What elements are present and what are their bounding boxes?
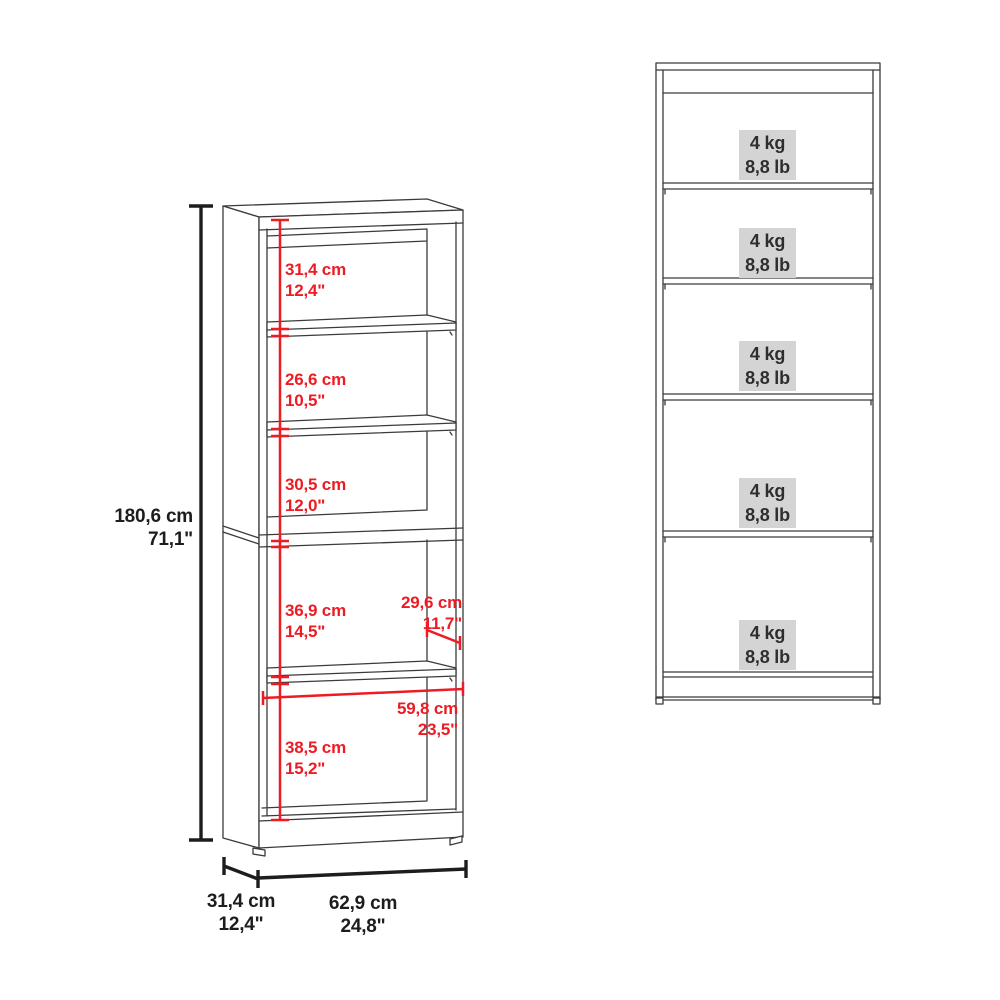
capacity-kg: 4 kg xyxy=(739,229,796,253)
overall-height-label: 180,6 cm 71,1" xyxy=(114,505,193,551)
dimension-cm: 31,4 cm xyxy=(285,259,346,280)
dimension-inch: 12,0" xyxy=(285,495,346,516)
capacity-lb: 8,8 lb xyxy=(739,645,796,669)
section-1-height-label: 31,4 cm 12,4" xyxy=(285,259,346,301)
dimension-cm: 30,5 cm xyxy=(285,474,346,495)
technical-line-art xyxy=(0,0,1000,1000)
dimension-inch: 12,4" xyxy=(207,913,275,936)
footprint-width-label: 62,9 cm 24,8" xyxy=(329,892,397,938)
depth-dimension-line xyxy=(224,857,258,888)
capacity-lb: 8,8 lb xyxy=(739,366,796,390)
capacity-kg: 4 kg xyxy=(739,131,796,155)
footprint-depth-label: 31,4 cm 12,4" xyxy=(207,890,275,936)
dimension-cm: 26,6 cm xyxy=(285,369,346,390)
capacity-kg: 4 kg xyxy=(739,479,796,503)
inner-depth-label: 29,6 cm 11,7" xyxy=(401,592,462,634)
capacity-lb: 8,8 lb xyxy=(739,155,796,179)
dimension-cm: 59,8 cm xyxy=(397,698,458,719)
section-3-height-label: 30,5 cm 12,0" xyxy=(285,474,346,516)
capacity-kg: 4 kg xyxy=(739,621,796,645)
dimension-inch: 23,5" xyxy=(397,719,458,740)
dimension-cm: 62,9 cm xyxy=(329,892,397,915)
shelf-capacity-badge: 4 kg 8,8 lb xyxy=(739,228,796,278)
dimension-cm: 31,4 cm xyxy=(207,890,275,913)
dimension-inch: 14,5" xyxy=(285,621,346,642)
capacity-kg: 4 kg xyxy=(739,342,796,366)
dimension-inch: 11,7" xyxy=(401,613,462,634)
inner-width-label: 59,8 cm 23,5" xyxy=(397,698,458,740)
section-2-height-label: 26,6 cm 10,5" xyxy=(285,369,346,411)
section-4-height-label: 36,9 cm 14,5" xyxy=(285,600,346,642)
dimension-cm: 38,5 cm xyxy=(285,737,346,758)
dimension-inch: 71,1" xyxy=(114,528,193,551)
width-dimension-line xyxy=(258,860,466,878)
shelf-capacity-badge: 4 kg 8,8 lb xyxy=(739,130,796,180)
bookcase-dimension-sheet: 31,4 cm 12,4" 26,6 cm 10,5" 30,5 cm 12,0… xyxy=(0,0,1000,1000)
capacity-lb: 8,8 lb xyxy=(739,503,796,527)
dimension-inch: 10,5" xyxy=(285,390,346,411)
section-5-height-label: 38,5 cm 15,2" xyxy=(285,737,346,779)
left-side-panel xyxy=(223,206,259,848)
dimension-inch: 24,8" xyxy=(329,915,397,938)
shelf-capacity-badge: 4 kg 8,8 lb xyxy=(739,620,796,670)
dimension-inch: 15,2" xyxy=(285,758,346,779)
capacity-lb: 8,8 lb xyxy=(739,253,796,277)
dimension-cm: 36,9 cm xyxy=(285,600,346,621)
shelf-capacity-badge: 4 kg 8,8 lb xyxy=(739,478,796,528)
dimension-inch: 12,4" xyxy=(285,280,346,301)
dimension-cm: 29,6 cm xyxy=(401,592,462,613)
dimension-cm: 180,6 cm xyxy=(114,505,193,528)
shelf-capacity-badge: 4 kg 8,8 lb xyxy=(739,341,796,391)
left-foot xyxy=(253,848,265,856)
